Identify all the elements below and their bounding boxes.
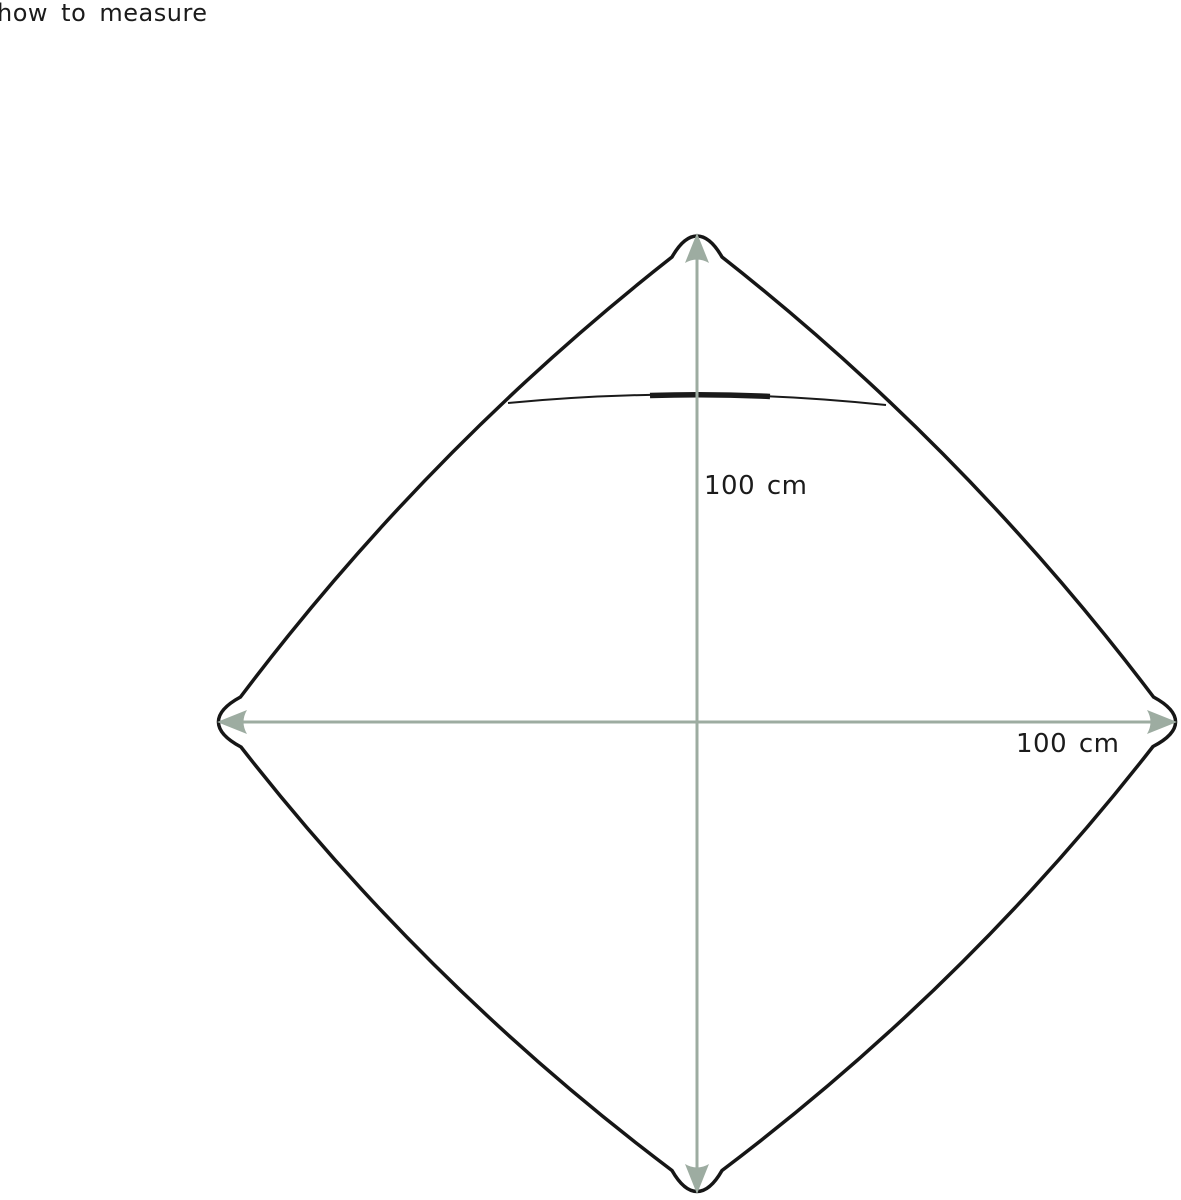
horizontal-measure-label: 100 cm [1016, 729, 1120, 759]
how-to-measure-page: how to measure 100 cm 100 cm [0, 0, 1181, 1200]
vertical-measure-label: 100 cm [704, 471, 808, 501]
measurement-diagram: 100 cm 100 cm [0, 0, 1181, 1200]
hood-trim-segment [650, 395, 770, 397]
